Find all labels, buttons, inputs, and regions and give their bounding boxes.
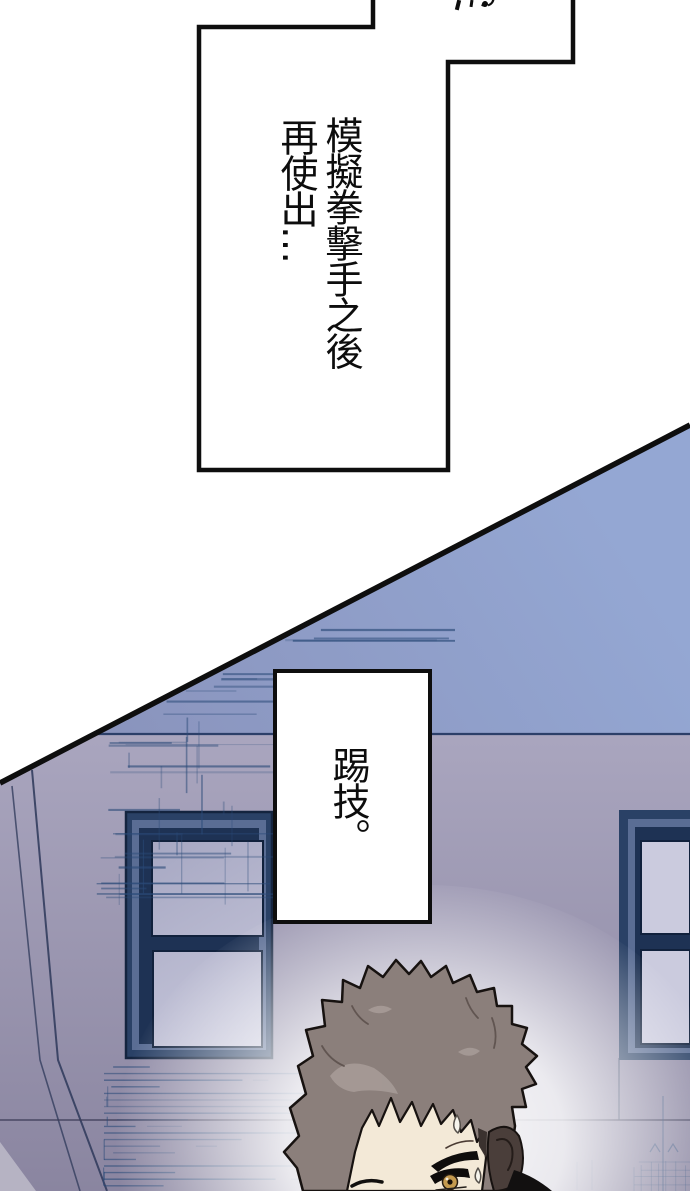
comic-page: 模擬拳擊手之後 再使出… ， 踢技。 xyxy=(0,0,690,1191)
bubble-top-fragment-comma: ， xyxy=(460,0,496,28)
speech-bubble-mid: 踢技。 xyxy=(273,669,432,924)
bubble-top-column-right: 模擬拳擊手之後 xyxy=(322,116,360,368)
window-pane xyxy=(152,841,263,936)
window-pane xyxy=(641,841,690,934)
bubble-top-column-left: 再使出… xyxy=(277,118,315,262)
bubble-mid-text: 踢技。 xyxy=(329,746,367,854)
pupil xyxy=(447,1179,452,1184)
speech-bubble-top-shape xyxy=(199,0,573,470)
